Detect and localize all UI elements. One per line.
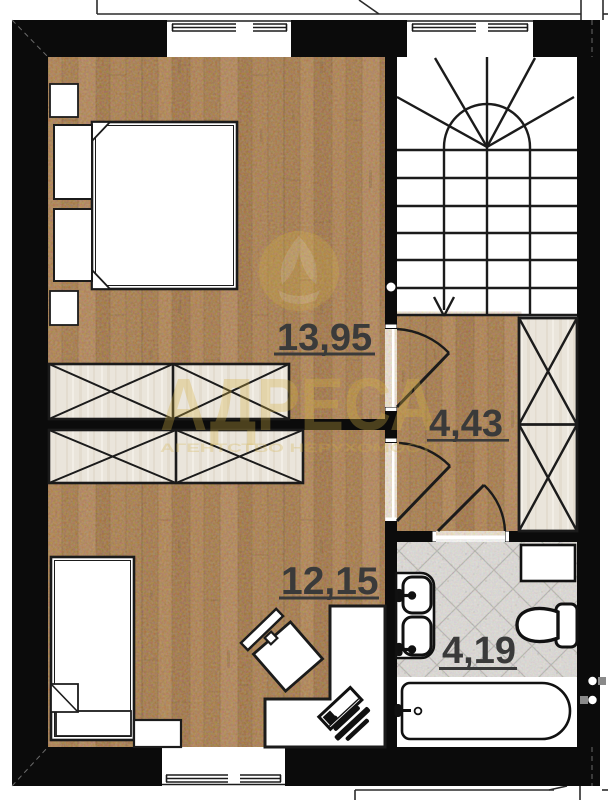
svg-text:АГЕНТСТВО НЕРУХОМОСТІ: АГЕНТСТВО НЕРУХОМОСТІ (160, 441, 438, 455)
svg-text:4,19: 4,19 (442, 630, 516, 672)
svg-text:АДРЕСА: АДРЕСА (160, 363, 437, 446)
svg-text:4,43: 4,43 (429, 403, 503, 445)
